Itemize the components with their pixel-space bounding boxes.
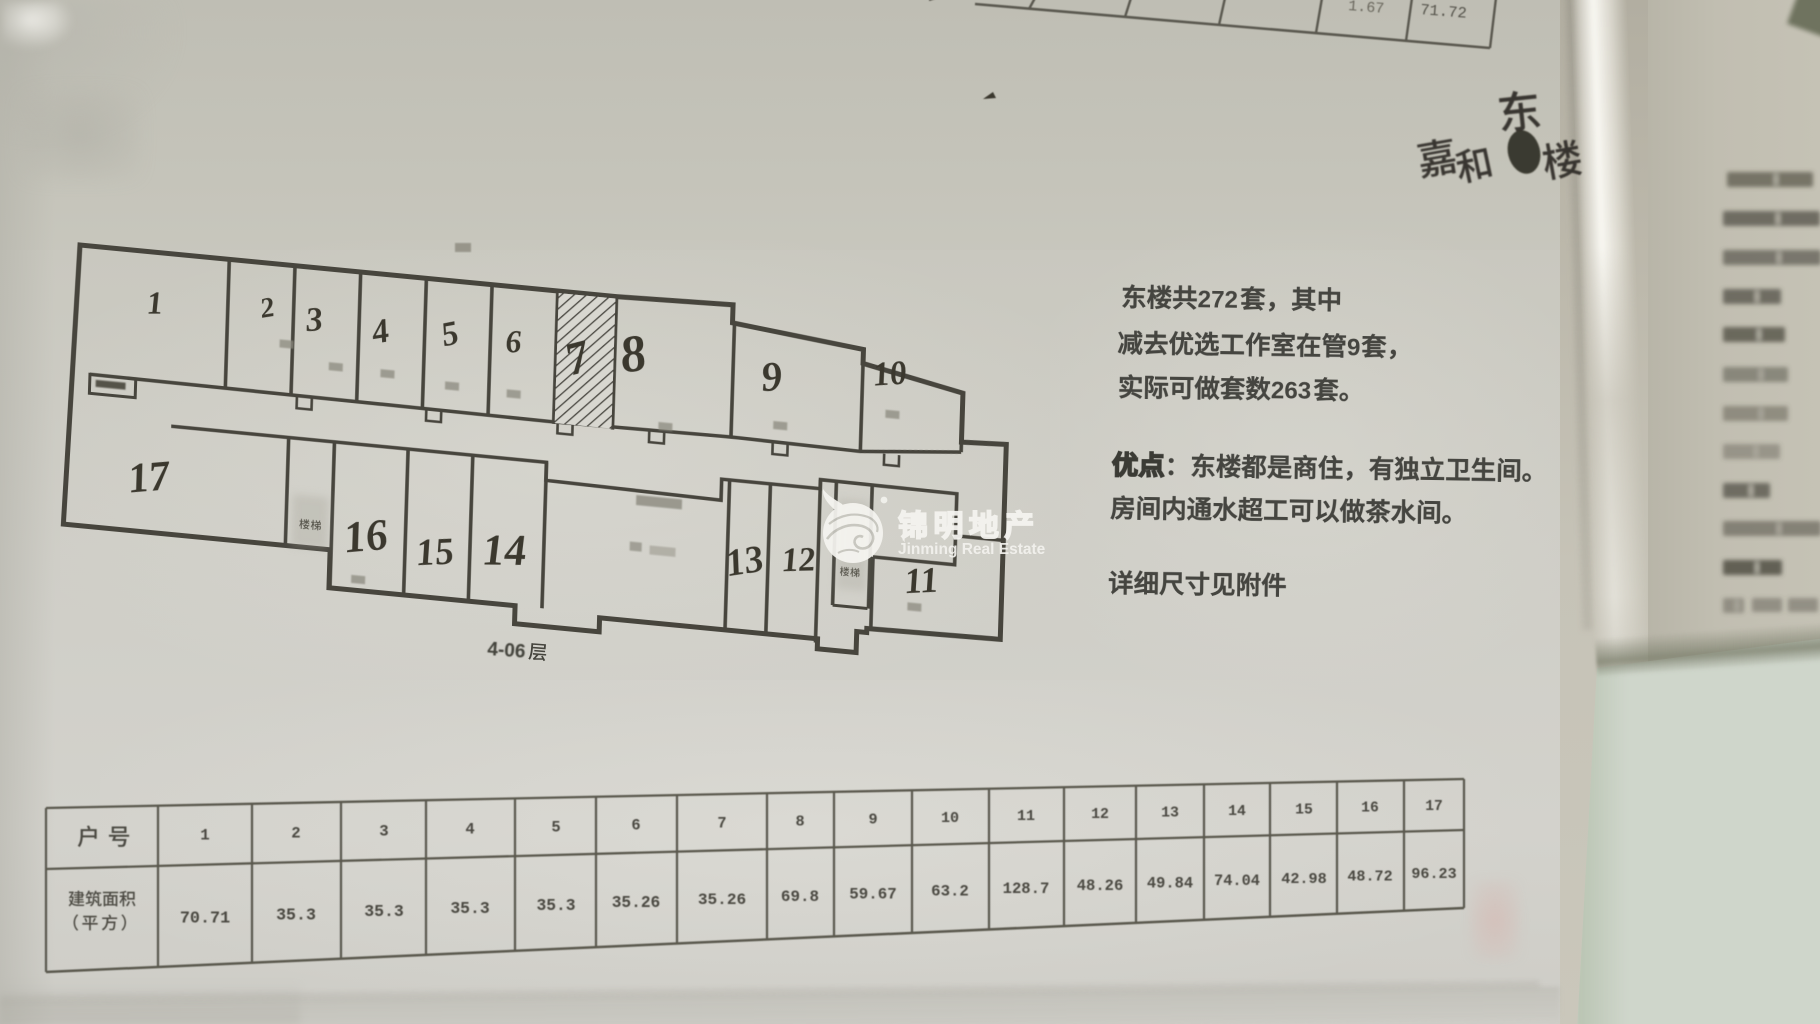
svg-text:272: 272 [1197,286,1238,314]
svg-text:16: 16 [1361,801,1379,817]
svg-text:15: 15 [1295,802,1313,818]
svg-text:48.26: 48.26 [1077,877,1124,895]
svg-text:10: 10 [871,354,909,393]
svg-text:263: 263 [1271,377,1312,405]
svg-text:35.3: 35.3 [364,902,404,921]
svg-text:69.8: 69.8 [781,888,819,906]
svg-text:11: 11 [902,560,940,602]
svg-text:13: 13 [722,538,768,585]
svg-text:128.7: 128.7 [1003,880,1050,898]
svg-text:17: 17 [1425,799,1443,815]
svg-text:59.67: 59.67 [849,886,896,904]
svg-text:1.67: 1.67 [1348,0,1385,18]
svg-text:12: 12 [780,541,817,579]
svg-text:71.72: 71.72 [1420,1,1468,23]
svg-text:4: 4 [367,312,392,351]
svg-text:1: 1 [146,284,165,320]
svg-text:5: 5 [551,818,560,836]
svg-text:3: 3 [303,301,325,339]
svg-text:4-06: 4-06 [487,639,527,663]
svg-text:9: 9 [1347,334,1361,361]
svg-text:17: 17 [125,453,175,503]
svg-text:11: 11 [1017,808,1035,825]
svg-text:70.71: 70.71 [180,910,230,929]
svg-text:49.84: 49.84 [1147,875,1193,893]
svg-text:14: 14 [1228,804,1246,820]
svg-text:74.04: 74.04 [1214,872,1260,890]
svg-text:6: 6 [504,323,522,359]
svg-text:7: 7 [717,814,726,832]
svg-text:35.3: 35.3 [450,899,489,918]
svg-text:2: 2 [256,292,277,325]
svg-text:48.72: 48.72 [1347,867,1392,885]
svg-text:6: 6 [631,816,640,834]
svg-text:16: 16 [340,510,390,563]
svg-text:15: 15 [414,530,456,574]
svg-text:10: 10 [941,809,959,827]
svg-text:8: 8 [795,812,804,830]
svg-text:13: 13 [1161,806,1179,822]
svg-text:35.3: 35.3 [276,905,316,924]
svg-text:14: 14 [481,525,527,575]
svg-text:4: 4 [465,820,474,838]
svg-text:1: 1 [200,827,209,845]
svg-text:3: 3 [379,822,388,840]
svg-text:9: 9 [868,811,877,829]
svg-text:63.2: 63.2 [931,883,969,901]
svg-text:96.23: 96.23 [1411,865,1456,883]
svg-text:9: 9 [759,354,784,401]
svg-text:42.98: 42.98 [1281,870,1327,888]
svg-text:8: 8 [615,325,651,385]
svg-text:35.26: 35.26 [698,891,746,909]
svg-text:35.3: 35.3 [536,896,575,915]
svg-text:35.26: 35.26 [612,894,661,912]
svg-text:5: 5 [437,314,462,354]
svg-text:12: 12 [1091,807,1109,823]
svg-text:Jinming Real Estate: Jinming Real Estate [898,541,1046,558]
svg-text:2: 2 [291,825,300,843]
